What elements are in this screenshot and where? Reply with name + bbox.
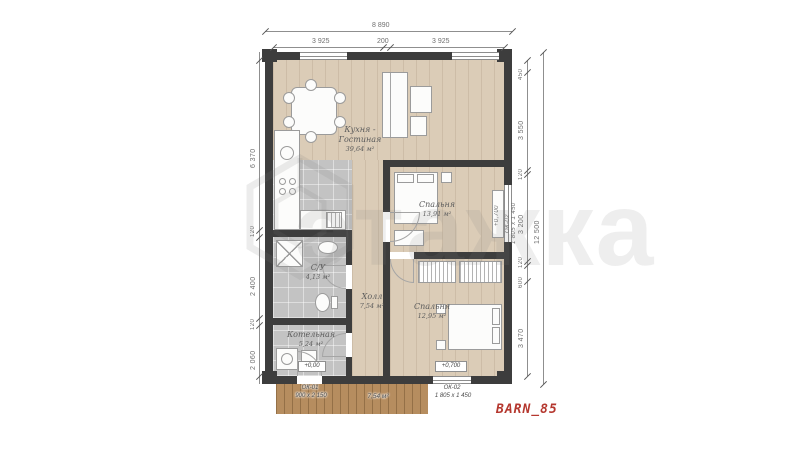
kitchen-counter <box>274 130 300 230</box>
bottom-window-level-mark: +0,700 <box>435 361 467 372</box>
bedroom-bottom-door-leaf <box>413 259 414 283</box>
wall-right <box>504 242 512 384</box>
room-area: 5,24 м² <box>279 340 343 348</box>
entry-door-level-mark: +0,00 <box>298 361 326 372</box>
window-bottom <box>433 376 471 384</box>
entry-door-code: ОК-01 <box>294 385 326 391</box>
corner-pier <box>497 371 512 384</box>
dining-chair <box>305 131 317 143</box>
wall-right <box>504 52 512 185</box>
dim-line-top-overall <box>265 31 512 32</box>
dining-chair <box>334 92 346 104</box>
bottom-window-size: 1 805 х 1 450 <box>424 393 482 399</box>
entry-door-size: 900 х 2 150 <box>286 393 336 399</box>
coffee-table <box>410 86 432 113</box>
dim-right-segment: 3 200 <box>518 198 525 234</box>
fridge <box>326 212 342 228</box>
wall-kitchen-bathroom <box>273 230 352 237</box>
kitchen-sink <box>280 146 294 160</box>
room-name: Котельная <box>279 330 343 340</box>
dim-line-left <box>259 52 260 384</box>
stove-burner <box>279 178 286 185</box>
stove-burner <box>289 188 296 195</box>
dimension-tick <box>524 373 531 380</box>
room-area: 12,95 м² <box>400 312 464 320</box>
dining-chair <box>283 92 295 104</box>
dim-top-segment: 3 925 <box>432 38 450 45</box>
wall-boiler-hall <box>346 357 352 376</box>
wall-top <box>347 52 452 60</box>
entry-door-opening <box>297 376 322 384</box>
floor-plan-canvas: Кухня - Гостиная 39,64 м² Спальня 13,91 … <box>0 0 800 450</box>
bed-pillow <box>397 174 414 183</box>
room-name: Кухня - <box>320 125 400 135</box>
dim-right-segment: 120 <box>518 248 524 268</box>
right-window-level-mark: +0,700 <box>494 196 500 226</box>
terrace-area-label: 7,54 м² <box>356 393 400 400</box>
bed-pillow <box>417 174 434 183</box>
nightstand <box>441 172 452 183</box>
bed-pillow <box>492 327 500 344</box>
dim-left-segment: 2 060 <box>250 334 257 370</box>
right-window-size: 1 805 х 1 450 <box>511 182 517 244</box>
wall-left <box>265 52 273 384</box>
stove-burner <box>289 178 296 185</box>
dim-left-segment: 120 <box>250 215 256 237</box>
dining-chair <box>305 79 317 91</box>
boiler-door-leaf <box>322 356 346 357</box>
wall-kitchen-bedroom <box>390 160 504 167</box>
dim-right-segment: 3 550 <box>518 100 525 140</box>
dim-right-segment: 3 470 <box>518 312 525 348</box>
corner-pier <box>262 371 277 384</box>
room-name: Спальня <box>405 200 469 210</box>
room-label-hall: Холл 7,54 м² <box>352 292 392 310</box>
dim-left-segment: 2 400 <box>250 260 257 296</box>
room-name: С/У <box>296 263 340 273</box>
dim-top-overall: 8 890 <box>372 22 390 29</box>
dim-right-segment: 600 <box>518 268 524 288</box>
toilet-tank <box>331 296 338 309</box>
dim-right-segment: 120 <box>518 160 524 180</box>
dim-left-segment: 120 <box>250 308 256 330</box>
room-label-bedroom-bottom: Спальня 12,95 м² <box>400 302 464 320</box>
wall-bedrooms-divider <box>414 252 504 259</box>
dim-line-right-overall <box>543 52 544 384</box>
dim-left-segment: 6 370 <box>250 128 257 168</box>
corner-pier <box>262 49 277 62</box>
room-area: 13,91 м² <box>405 210 469 218</box>
room-area: 39,64 м² <box>320 145 400 153</box>
washbasin <box>318 241 338 254</box>
wall-hall-bedroom-top <box>383 160 390 212</box>
window-top-right <box>452 52 499 60</box>
room-area: 7,54 м² <box>352 302 392 310</box>
room-label-bedroom-top: Спальня 13,91 м² <box>405 200 469 218</box>
dim-line-right-inner <box>527 60 528 376</box>
room-name: Спальня <box>400 302 464 312</box>
dining-chair <box>283 116 295 128</box>
dim-right-overall: 12 500 <box>534 200 541 244</box>
floor-hall <box>352 160 383 376</box>
dim-top-segment: 3 925 <box>312 38 330 45</box>
wall-bathroom-boiler <box>273 318 346 325</box>
wardrobe <box>459 261 502 283</box>
wall-bathroom-hall <box>346 237 352 265</box>
nightstand <box>436 340 446 350</box>
dim-top-segment: 200 <box>377 38 389 45</box>
corner-pier <box>497 49 512 62</box>
side-table <box>410 116 427 136</box>
bed-pillow <box>492 308 500 325</box>
room-name: Гостиная <box>320 135 400 145</box>
bottom-window-code: ОК-02 <box>436 385 468 391</box>
washing-machine-drum <box>281 353 293 365</box>
room-label-kitchen-living: Кухня - Гостиная 39,64 м² <box>320 125 400 153</box>
dimension-tick <box>540 381 547 388</box>
toilet <box>315 293 330 312</box>
room-name: Холл <box>352 292 392 302</box>
dimension-tick <box>509 28 516 35</box>
wardrobe <box>418 261 456 283</box>
project-code-label: BARN_85 <box>496 402 576 417</box>
stove-burner <box>279 188 286 195</box>
wall-bottom <box>322 376 433 384</box>
window-top-left <box>300 52 347 60</box>
room-label-boiler: Котельная 5,24 м² <box>279 330 343 348</box>
room-area: 4,13 м² <box>296 273 340 281</box>
room-label-bathroom: С/У 4,13 м² <box>296 263 340 281</box>
dim-right-segment: 450 <box>518 58 524 80</box>
